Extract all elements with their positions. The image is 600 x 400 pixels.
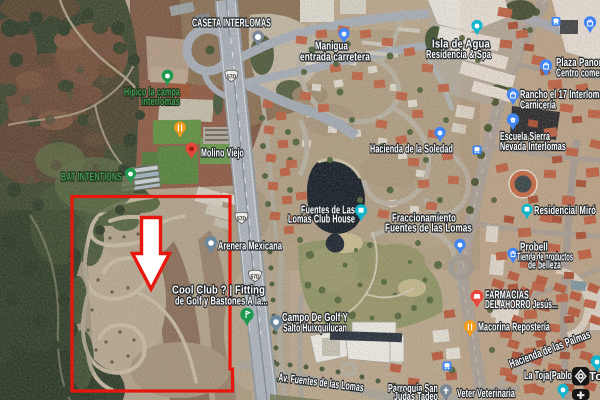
svg-text:entrada carretera: entrada carretera — [300, 52, 370, 64]
svg-text:Carnicería: Carnicería — [520, 100, 556, 112]
svg-text:Arenera Mexicana: Arenera Mexicana — [218, 241, 282, 253]
svg-text:Hacienda de la Soledad: Hacienda de la Soledad — [370, 144, 453, 156]
svg-text:Lomas Club House: Lomas Club House — [288, 214, 355, 226]
svg-text:Residencia & Spa: Residencia & Spa — [426, 49, 491, 61]
svg-text:Centro comercial: Centro comercial — [556, 68, 600, 80]
svg-text:Nevada Interlomas: Nevada Interlomas — [500, 141, 566, 153]
svg-text:DEL AHORRO Jesús...: DEL AHORRO Jesús... — [485, 299, 558, 311]
svg-text:Fuentes de las Lomas: Fuentes de las Lomas — [385, 223, 472, 235]
svg-text:Macorina Repostería: Macorina Repostería — [478, 322, 550, 334]
svg-text:de belleza: de belleza — [528, 260, 561, 272]
svg-text:CASETA INTERLOMAS: CASETA INTERLOMAS — [192, 18, 271, 30]
svg-text:Residencial Miró: Residencial Miró — [534, 205, 596, 217]
svg-text:La Toja(Pablo: La Toja(Pablo — [524, 370, 572, 382]
svg-text:57D: 57D — [237, 215, 247, 222]
svg-text:57D: 57D — [251, 273, 261, 280]
svg-text:de Golf y Bastones A la...: de Golf y Bastones A la... — [175, 296, 268, 308]
svg-text:interlomas: interlomas — [141, 96, 180, 108]
svg-text:57D: 57D — [227, 73, 237, 80]
svg-text:Salto Huixquilucan: Salto Huixquilucan — [283, 323, 347, 335]
svg-text:Tor: Tor — [589, 371, 600, 383]
svg-text:Judas Tadeo: Judas Tadeo — [394, 391, 438, 400]
svg-text:Molino Viejo: Molino Viejo — [201, 148, 244, 160]
svg-text:BAT INTENTIONS: BAT INTENTIONS — [61, 172, 122, 184]
svg-text:Veter Veterinaria: Veter Veterinaria — [457, 388, 515, 400]
